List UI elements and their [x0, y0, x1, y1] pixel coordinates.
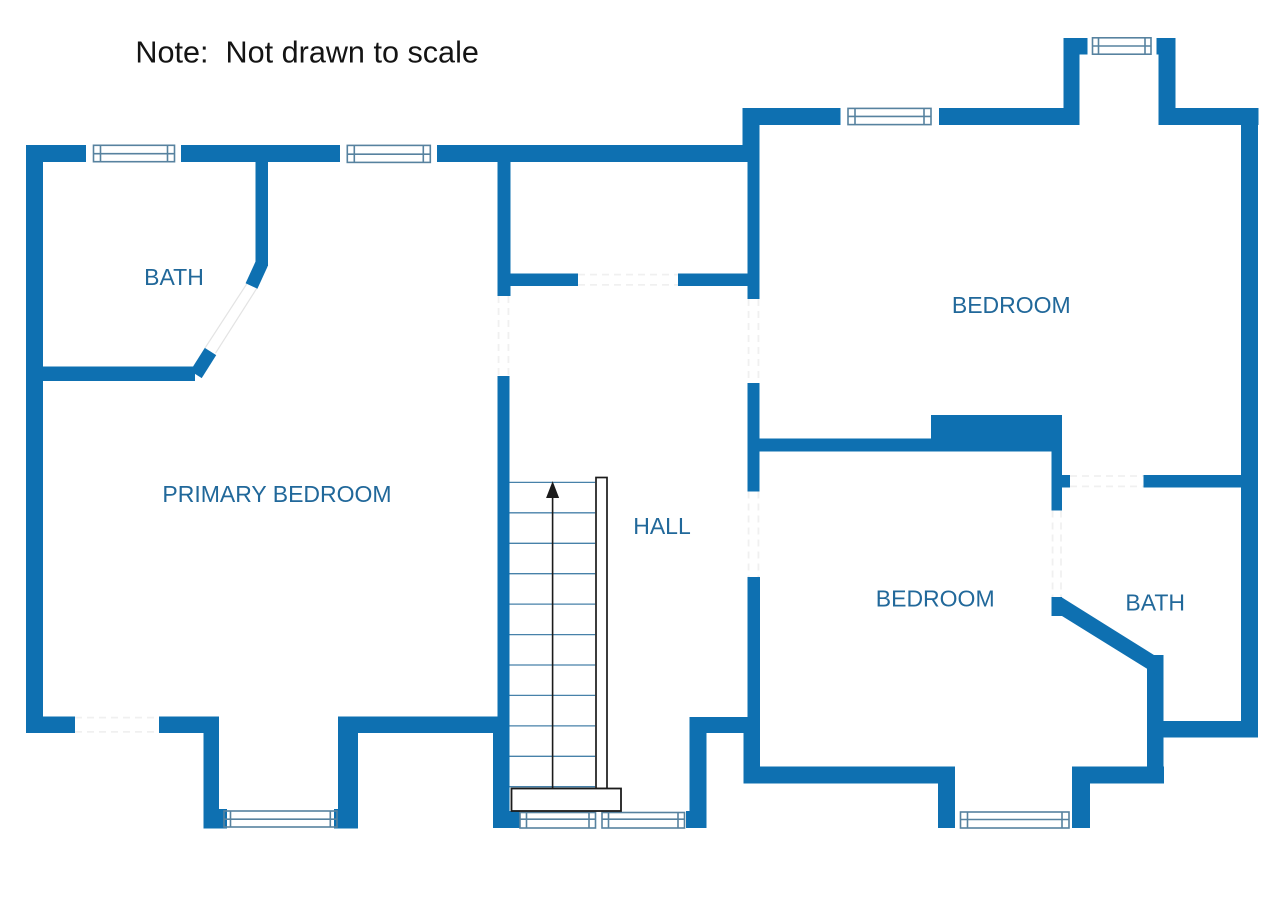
svg-text:HALL: HALL [633, 513, 691, 539]
svg-text:BEDROOM: BEDROOM [952, 292, 1071, 318]
svg-text:BATH: BATH [1125, 590, 1185, 616]
svg-text:PRIMARY BEDROOM: PRIMARY BEDROOM [162, 481, 391, 507]
svg-text:Note: Not drawn to scale: Note: Not drawn to scale [135, 36, 479, 70]
svg-text:BEDROOM: BEDROOM [876, 586, 995, 612]
svg-text:BATH: BATH [144, 264, 204, 290]
